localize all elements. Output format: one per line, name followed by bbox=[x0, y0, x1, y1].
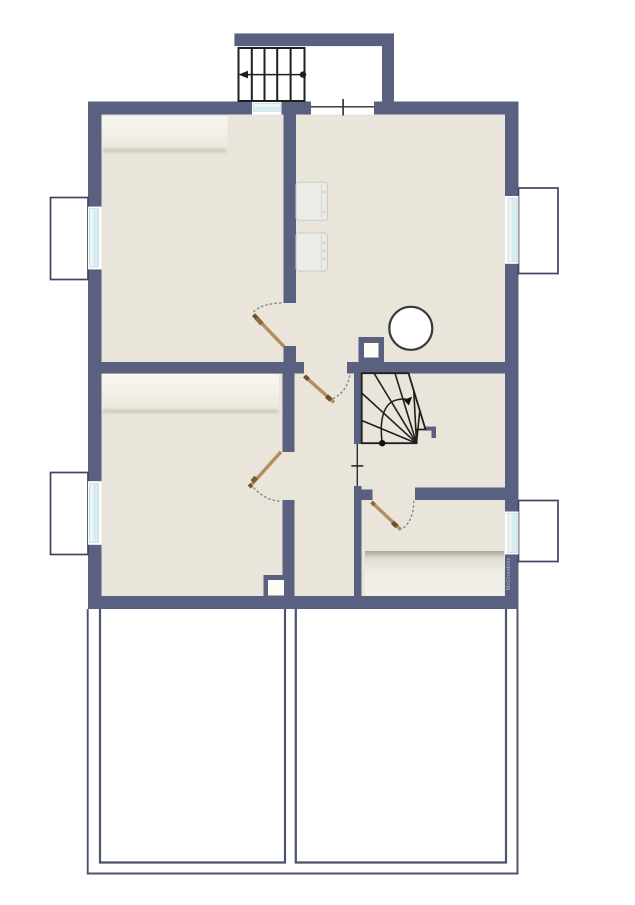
svg-text:McGrundriss: McGrundriss bbox=[506, 558, 512, 591]
